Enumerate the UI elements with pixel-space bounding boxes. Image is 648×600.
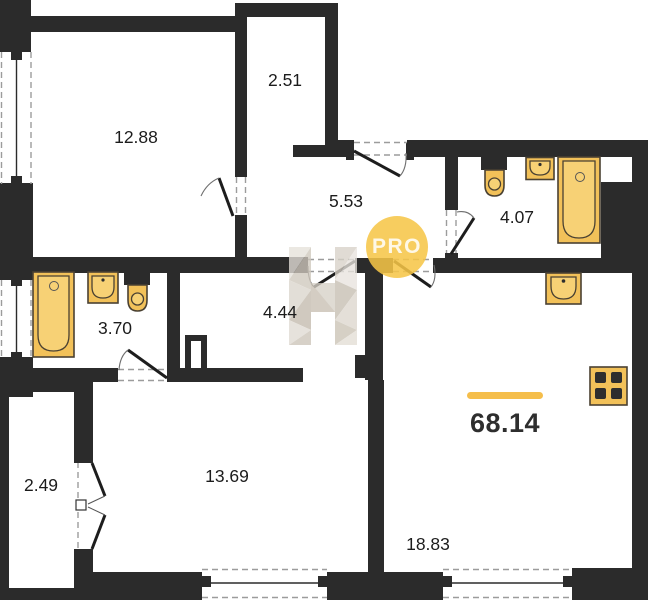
window-bottom-bedroom (202, 570, 327, 598)
window-left-bottom (2, 278, 32, 360)
sink-icon-right (526, 158, 554, 180)
stove-icon (590, 367, 627, 405)
bathtub-icon-right (558, 157, 600, 243)
floor-plan: 12.88 2.51 5.53 4.07 3.70 4.44 13.69 2.4… (0, 0, 648, 600)
bathtub-icon-left (33, 272, 74, 357)
floor-plan-drawing (0, 0, 648, 600)
total-area-label: 68.14 (445, 409, 565, 437)
door-bathroom-left (118, 350, 167, 381)
door-balcony (74, 456, 105, 556)
area-label-balcony: 2.49 (6, 474, 76, 496)
toilet-icon-left (124, 272, 150, 311)
toilet-icon-right (481, 157, 507, 196)
area-label-bathroom-left: 3.70 (85, 317, 145, 339)
door-entrance (354, 143, 407, 177)
window-left-top (2, 52, 32, 184)
door-bathroom-right (447, 210, 475, 254)
area-label-inner-hall: 4.44 (250, 301, 310, 323)
watermark-h-logo (289, 247, 357, 345)
door-room-top-left (201, 177, 246, 216)
sink-icon-left (88, 272, 118, 303)
area-label-kitchen-living: 18.83 (388, 533, 468, 555)
area-label-bathroom-right: 4.07 (487, 206, 547, 228)
area-label-room-top-left: 12.88 (96, 126, 176, 148)
total-area-underline (467, 392, 543, 399)
kitchen-sink-icon (546, 273, 581, 304)
area-label-wardrobe: 2.51 (255, 69, 315, 91)
area-label-bedroom: 13.69 (187, 465, 267, 487)
watermark-pro-label: PRO (362, 235, 432, 259)
window-bottom-kitchen (443, 570, 572, 598)
area-label-hallway: 5.53 (316, 190, 376, 212)
